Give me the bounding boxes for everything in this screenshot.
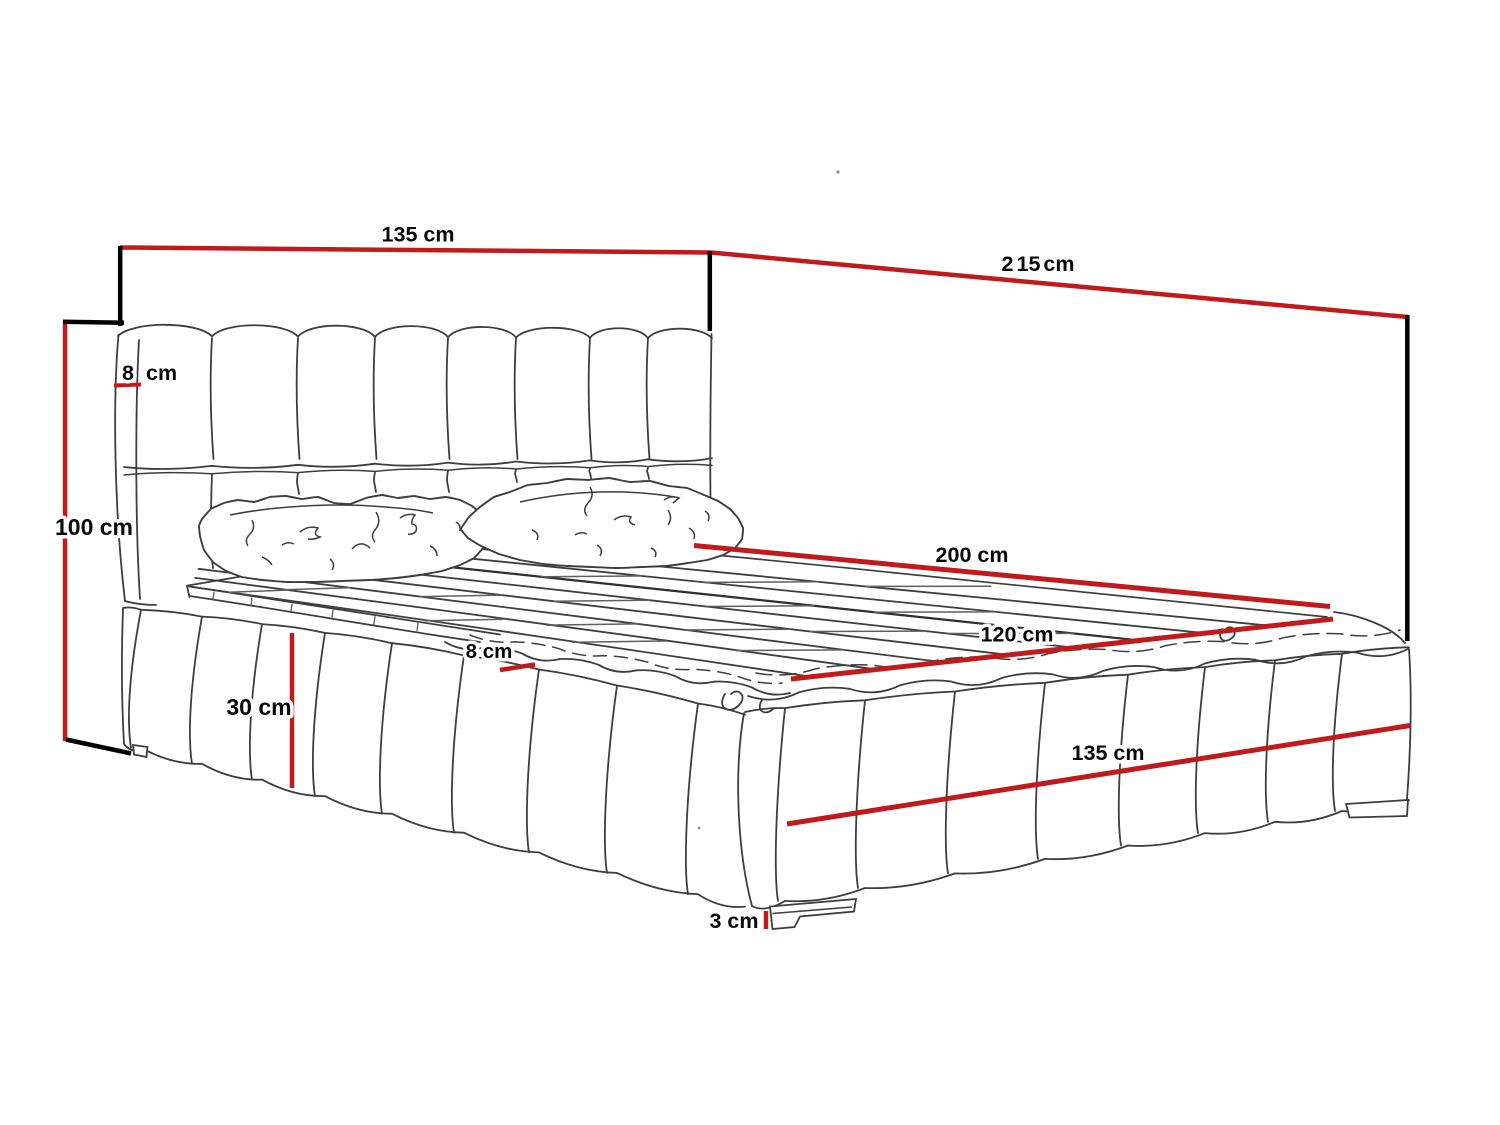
svg-text:100 cm: 100 cm (55, 514, 133, 540)
svg-text:200 cm: 200 cm (936, 543, 1009, 567)
svg-text:135 cm: 135 cm (382, 223, 455, 247)
svg-text:30 cm: 30 cm (226, 694, 291, 720)
svg-text:8: 8 (122, 361, 134, 385)
svg-text:120 cm: 120 cm (981, 623, 1054, 647)
svg-text:215cm: 215cm (1002, 252, 1075, 276)
svg-text:3 cm: 3 cm (709, 909, 758, 933)
svg-text:8 cm: 8 cm (466, 640, 513, 663)
svg-text:135 cm: 135 cm (1072, 741, 1145, 765)
svg-text:cm: cm (146, 361, 177, 385)
